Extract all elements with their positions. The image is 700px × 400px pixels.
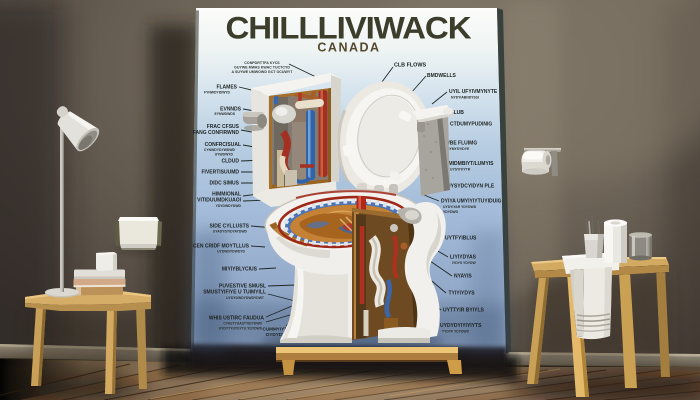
svg-text:YDYDWDYDWD: YDYDWDYDWD	[216, 204, 242, 208]
svg-text:UYWDWYD: UYWDWYD	[215, 153, 234, 157]
svg-text:A SUYWE UMWOWD GCT OCUWYT: A SUYWE UMWOWD GCT OCUWYT	[232, 70, 294, 74]
svg-text:CYNWDYDYWDWD: CYNWDYDYWDWD	[204, 148, 236, 152]
svg-text:UYSYIYIYTR: UYSYIYIYTR	[450, 168, 471, 172]
svg-text:LIYIYDYAS: LIYIYDYAS	[450, 255, 477, 261]
svg-text:UYADYDYIDYAYDWD: UYADYDYIDYAYDWD	[213, 230, 248, 234]
svg-text:UYDYTYUYSYTU YDYDWS: UYDYTYUYSYTU YDYDWS	[219, 327, 263, 331]
svg-text:UYDYDYIYIYIYTS: UYDYDYIYIYIYTS	[440, 323, 482, 329]
svg-text:DIDC SIMUS: DIDC SIMUS	[210, 181, 240, 187]
svg-text:UYTTYIR BYIYLS: UYTTYIR BYIYLS	[443, 308, 485, 314]
svg-text:UYDYIYAR YDYDWD: UYDYIYAR YDYDWD	[443, 205, 477, 209]
svg-text:BMDWELLS: BMDWELLS	[427, 73, 457, 79]
svg-text:GUYWE MWAS KWAC TUCTCYD: GUYWE MWAS KWAC TUCTCYD	[234, 66, 290, 70]
svg-text:TYIYIYDYS: TYIYIYDYS	[449, 291, 476, 297]
svg-text:UYIL UFYIVMYNYTE: UYIL UFYIVMYNYTE	[449, 89, 498, 95]
svg-text:NYDYIABNDYSSI: NYDYIABNDYSSI	[451, 96, 479, 100]
svg-text:MIYIYBLYCIUS: MIYIYBLYCIUS	[222, 267, 258, 273]
svg-text:FYNWDYIDWYD: FYNWDYIDWYD	[204, 91, 231, 95]
svg-text:NYAYIS: NYAYIS	[454, 274, 472, 280]
svg-text:WBE FLUIMG: WBE FLUIMG	[445, 141, 477, 147]
svg-text:CLB FLOWS: CLB FLOWS	[394, 63, 426, 69]
svg-text:UYDWDYDWDYD: UYDWDYDWDYD	[217, 250, 245, 254]
svg-text:FANG CONFIRWND: FANG CONFIRWND	[193, 130, 240, 136]
svg-text:SMUSTYIFIYE U TUIMYILL: SMUSTYIFIYE U TUIMYILL	[203, 290, 266, 296]
svg-text:TYDYF YDYDWD: TYDYF YDYDWD	[442, 330, 470, 334]
svg-text:CTDUMYPUDINIG: CTDUMYPUDINIG	[450, 122, 492, 128]
svg-text:UYTFYIBLUS: UYTFYIBLUS	[445, 236, 477, 242]
svg-text:UYSYDCYIDYN PLE: UYSYDCYIDYN PLE	[447, 184, 495, 190]
svg-text:CLDUD: CLDUD	[222, 159, 240, 165]
svg-text:UYDYDWDYDWDYDWT: UYDYDWDYDWDYDWT	[226, 296, 265, 300]
svg-text:CANADA: CANADA	[317, 41, 380, 55]
svg-text:EYNWDWDS: EYNWDWDS	[214, 112, 235, 116]
svg-text:NYMYSYIDYE: NYMYSYIDYE	[447, 147, 470, 151]
svg-text:DYIYA UMYIYIYTUYIDUIG: DYIYA UMYIYIYTUYIDUIG	[441, 199, 502, 205]
svg-text:CONPDRTTFA KYCS: CONPDRTTFA KYCS	[244, 61, 280, 65]
svg-text:FIVERTISUUMD: FIVERTISUUMD	[202, 170, 240, 176]
svg-text:IYDYS YDYDW: IYDYS YDYDW	[452, 261, 476, 265]
svg-text:VITIDUUMDKUAOI: VITIDUUMDKUAOI	[197, 198, 241, 204]
svg-text:CYASTYUASTYIDYDWD: CYASTYUASTYIDYDWD	[223, 322, 262, 326]
svg-text:YDYDWD: YDYDWD	[443, 210, 459, 214]
svg-text:MIDMBIYT/LUMYIS: MIDMBIYT/LUMYIS	[449, 161, 495, 167]
